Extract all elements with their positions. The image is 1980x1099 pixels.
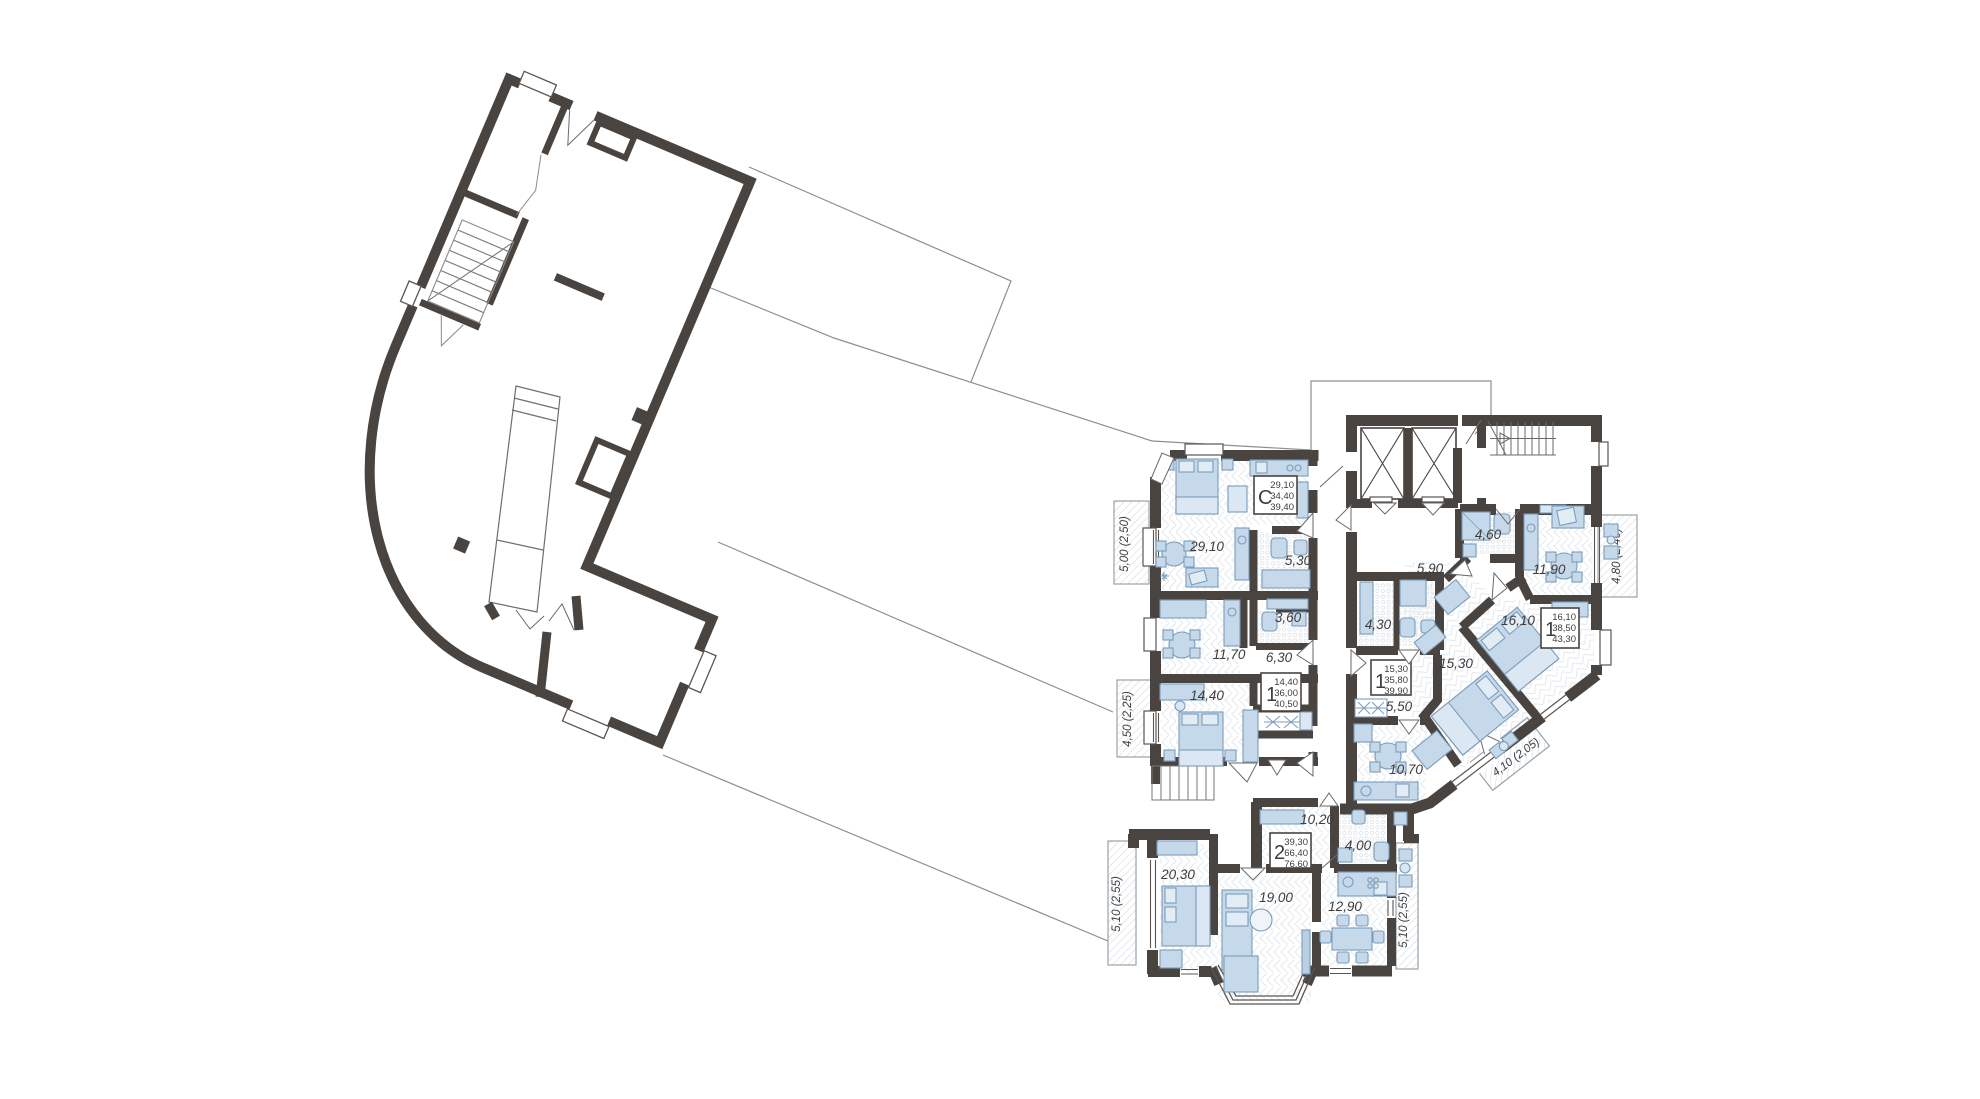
svg-text:5,30: 5,30 [1285,553,1312,568]
svg-text:4,60: 4,60 [1475,527,1502,542]
svg-text:29,10: 29,10 [1270,480,1294,491]
svg-text:4,50 (2,25): 4,50 (2,25) [1122,691,1134,747]
svg-text:39,90: 39,90 [1384,686,1408,697]
svg-text:38,50: 38,50 [1552,623,1576,634]
svg-text:4,30: 4,30 [1365,617,1392,632]
svg-text:39,30: 39,30 [1284,837,1308,848]
svg-text:29,10: 29,10 [1189,539,1224,554]
svg-text:19,00: 19,00 [1259,890,1293,905]
svg-text:34,40: 34,40 [1270,491,1294,502]
svg-text:4,00: 4,00 [1345,838,1372,853]
svg-text:36,00: 36,00 [1274,688,1298,699]
svg-text:20,30: 20,30 [1160,867,1195,882]
svg-text:5,10 (2,55): 5,10 (2,55) [1398,892,1410,948]
svg-text:10,70: 10,70 [1389,762,1423,777]
svg-text:5,90: 5,90 [1417,561,1444,576]
svg-text:43,30: 43,30 [1552,634,1576,645]
svg-text:5,00 (2,50): 5,00 (2,50) [1119,516,1131,572]
svg-text:5,10 (2,55): 5,10 (2,55) [1111,876,1123,932]
svg-text:10,20: 10,20 [1300,812,1334,827]
svg-text:14,40: 14,40 [1190,688,1224,703]
svg-text:3,60: 3,60 [1275,610,1302,625]
svg-text:15,30: 15,30 [1439,656,1473,671]
svg-text:16,10: 16,10 [1501,613,1535,628]
svg-text:16,10: 16,10 [1552,612,1576,623]
svg-text:76,60: 76,60 [1284,859,1308,870]
svg-text:35,80: 35,80 [1384,675,1408,686]
svg-text:40,50: 40,50 [1274,699,1298,710]
svg-text:5,50: 5,50 [1386,699,1413,714]
svg-text:11,70: 11,70 [1213,647,1246,662]
svg-text:11,90: 11,90 [1533,562,1566,577]
svg-text:39,40: 39,40 [1270,502,1294,513]
svg-text:66,40: 66,40 [1284,848,1308,859]
svg-text:15,30: 15,30 [1384,664,1408,675]
svg-text:6,30: 6,30 [1266,650,1293,665]
svg-text:14,40: 14,40 [1274,677,1298,688]
svg-text:12,90: 12,90 [1328,899,1362,914]
